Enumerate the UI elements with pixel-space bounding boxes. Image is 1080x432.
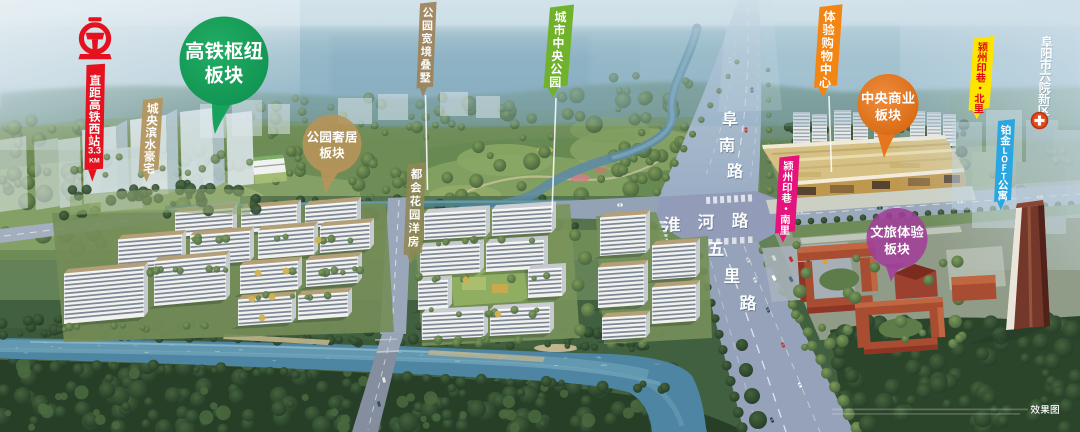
svg-text:3.3: 3.3	[88, 146, 101, 157]
svg-text:KM: KM	[89, 158, 100, 165]
